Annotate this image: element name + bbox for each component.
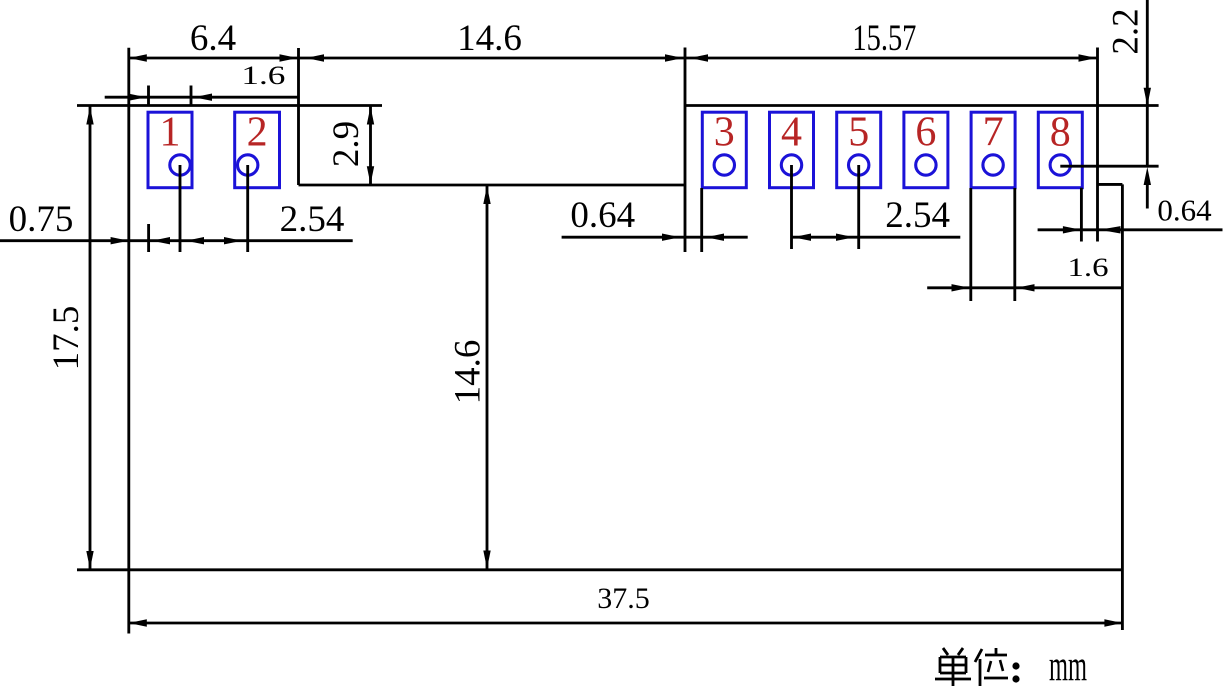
svg-text:0.64: 0.64 [570, 195, 635, 236]
svg-text:1.6: 1.6 [241, 61, 285, 90]
svg-text:1: 1 [160, 110, 181, 156]
svg-text:4: 4 [781, 110, 802, 156]
svg-text:0.75: 0.75 [9, 199, 74, 240]
svg-text:2.2: 2.2 [1106, 8, 1147, 54]
svg-text:2: 2 [247, 110, 268, 156]
svg-text:2.9: 2.9 [326, 121, 367, 167]
svg-text:6.4: 6.4 [190, 18, 236, 59]
svg-text:8: 8 [1050, 110, 1071, 156]
svg-text:14.6: 14.6 [448, 340, 489, 405]
svg-text:6: 6 [915, 110, 936, 156]
svg-text:15.57: 15.57 [852, 18, 916, 59]
svg-text:5: 5 [848, 110, 869, 156]
svg-text:7: 7 [983, 110, 1004, 156]
svg-text:0.64: 0.64 [1157, 193, 1212, 228]
svg-text:mm: mm [1049, 642, 1087, 691]
svg-text:2.54: 2.54 [280, 199, 345, 240]
svg-text:2.54: 2.54 [885, 195, 950, 236]
svg-text:1.6: 1.6 [1068, 253, 1109, 282]
svg-text:3: 3 [714, 110, 735, 156]
svg-text:17.5: 17.5 [46, 306, 87, 371]
svg-text:14.6: 14.6 [457, 18, 522, 59]
svg-text:37.5: 37.5 [597, 582, 650, 615]
